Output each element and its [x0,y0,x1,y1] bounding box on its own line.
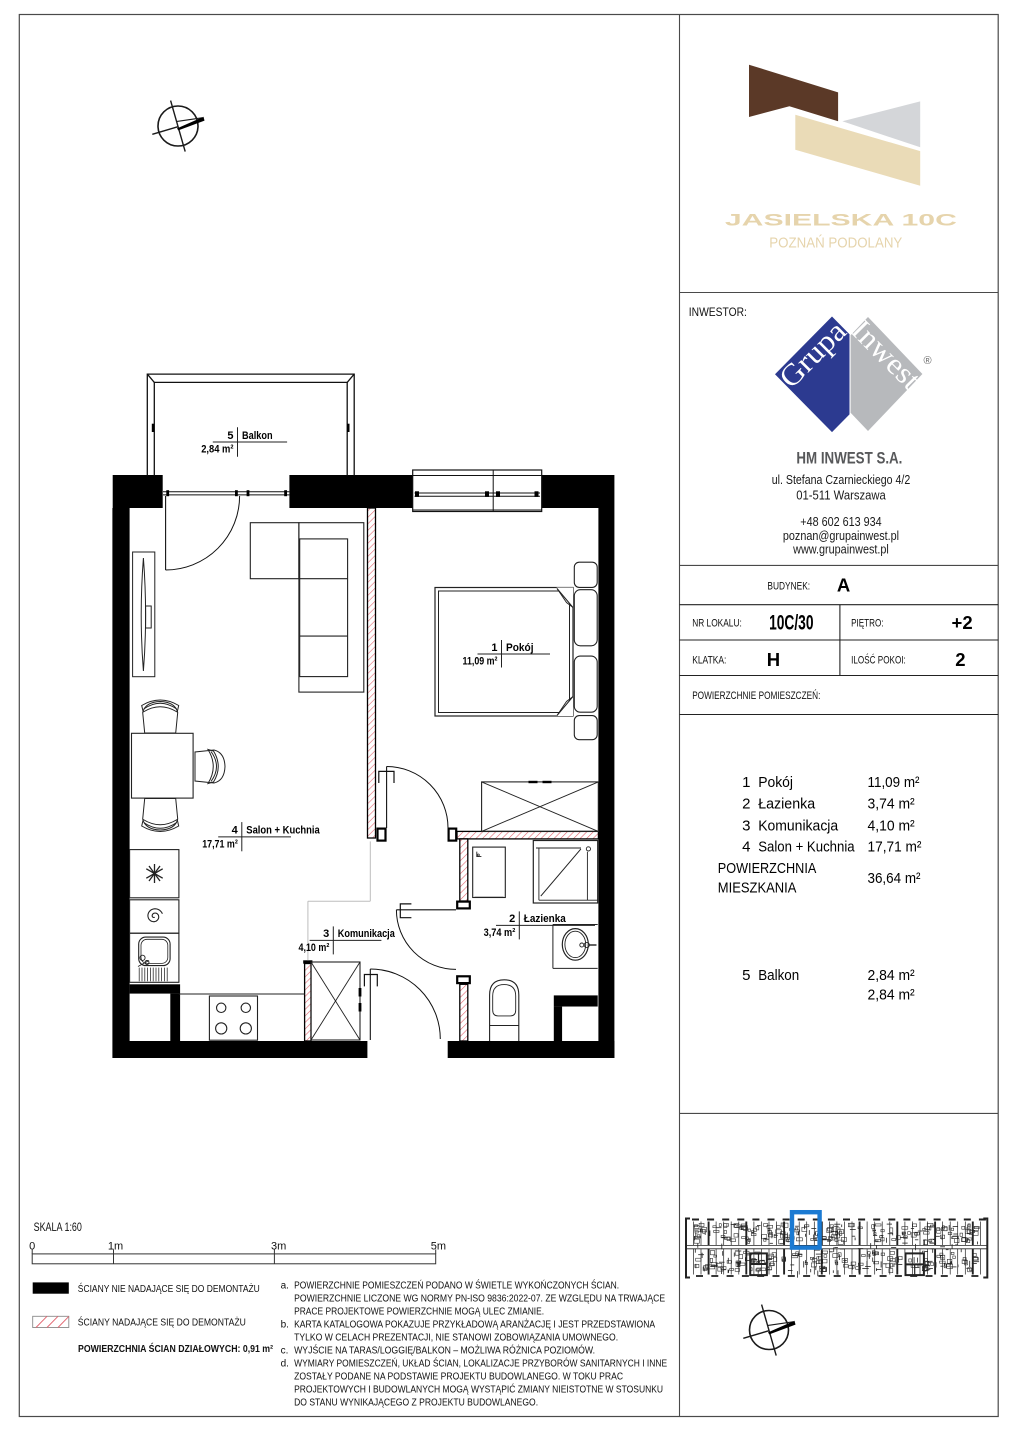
svg-text:Łazienka: Łazienka [758,795,816,812]
svg-text:01-511 Warszawa: 01-511 Warszawa [796,488,886,503]
svg-text:A: A [837,575,850,596]
svg-text:Pokój: Pokój [506,642,534,654]
svg-text:ul. Stefana Czarnieckiego 4/2: ul. Stefana Czarnieckiego 4/2 [772,472,911,487]
svg-text:Salon + Kuchnia: Salon + Kuchnia [758,838,855,855]
svg-text:JASIELSKA 10C: JASIELSKA 10C [725,211,957,230]
svg-text:3: 3 [323,928,329,940]
svg-text:1: 1 [742,774,750,791]
svg-text:2: 2 [955,649,965,670]
svg-text:Balkon: Balkon [758,967,799,984]
svg-text:DO STANU WYNIKAJĄCEGO Z PROJEK: DO STANU WYNIKAJĄCEGO Z PROJEKTU BUDOWLA… [294,1398,538,1409]
svg-text:MIESZKANIA: MIESZKANIA [718,879,797,896]
svg-text:ILOŚĆ POKOI:: ILOŚĆ POKOI: [851,654,906,667]
svg-text:NR LOKALU:: NR LOKALU: [692,618,742,630]
svg-text:5: 5 [227,430,233,442]
svg-text:4: 4 [742,838,750,855]
svg-text:POWIERZCHNIE POMIESZCZEŃ:: POWIERZCHNIE POMIESZCZEŃ: [692,689,820,702]
svg-text:POWIERZCHNIA ŚCIAN DZIAŁOWYCH:: POWIERZCHNIA ŚCIAN DZIAŁOWYCH: 0,91 m² [78,1342,273,1355]
svg-text:Pokój: Pokój [758,774,793,791]
svg-text:2,84 m²: 2,84 m² [868,987,915,1004]
svg-text:POWIERZCHNIE LICZONE WG NORMY: POWIERZCHNIE LICZONE WG NORMY PN-ISO 983… [294,1294,665,1305]
svg-text:Balkon: Balkon [242,430,273,442]
svg-text:www.grupainwest.pl: www.grupainwest.pl [792,542,889,557]
svg-text:3: 3 [742,818,750,835]
svg-text:Salon + Kuchnia: Salon + Kuchnia [246,825,320,837]
svg-text:0: 0 [29,1241,35,1253]
svg-text:3m: 3m [271,1241,286,1253]
svg-text:Komunikacja: Komunikacja [338,928,396,940]
svg-text:ŚCIANY NADAJĄCE SIĘ DO DEMONTA: ŚCIANY NADAJĄCE SIĘ DO DEMONTAŻU [78,1316,246,1329]
svg-text:HM INWEST S.A.: HM INWEST S.A. [796,449,902,468]
svg-text:2,84 m²: 2,84 m² [868,967,915,984]
svg-text:17,71 m²: 17,71 m² [868,838,922,855]
svg-text:KARTA KATALOGOWA POKAZUJE PRZY: KARTA KATALOGOWA POKAZUJE PRZYKŁADOWĄ AR… [294,1318,655,1331]
svg-text:1: 1 [491,642,497,654]
svg-text:5m: 5m [431,1241,446,1253]
svg-text:PROJEKTOWYCH I BUDOWLANYCH MOG: PROJEKTOWYCH I BUDOWLANYCH MOGĄ WYSTĄPIĆ… [294,1383,663,1396]
svg-text:4,10 m²: 4,10 m² [868,818,915,835]
svg-text:3,74 m²: 3,74 m² [868,795,915,812]
svg-text:ZOSTAŁY PODANE NA PODSTAWIE PR: ZOSTAŁY PODANE NA PODSTAWIE PROJEKTU BUD… [294,1372,623,1383]
svg-text:ŚCIANY NIE NADAJĄCE SIĘ DO DEM: ŚCIANY NIE NADAJĄCE SIĘ DO DEMONTAŻU [78,1282,260,1295]
svg-text:10C/30: 10C/30 [769,612,813,635]
svg-text:WYMIARY POMIESZCZEŃ, UKŁAD ŚCI: WYMIARY POMIESZCZEŃ, UKŁAD ŚCIAN, LOKALI… [294,1357,667,1370]
svg-text:b.: b. [281,1320,289,1331]
svg-text:3,74 m²: 3,74 m² [484,927,516,939]
svg-text:+2: +2 [952,612,973,633]
svg-text:POWIERZCHNIE POMIESZCZEŃ PODAN: POWIERZCHNIE POMIESZCZEŃ PODANO W ŚWIETL… [294,1279,619,1292]
svg-text:®: ® [924,355,932,367]
svg-text:H: H [767,649,780,670]
svg-text:WYJŚCIE NA TARAS/LOGGIĘ/BALKON: WYJŚCIE NA TARAS/LOGGIĘ/BALKON – MOŻLIWA… [294,1344,595,1357]
svg-text:SKALA 1:60: SKALA 1:60 [34,1222,82,1234]
svg-text:5: 5 [742,967,750,984]
svg-text:KLATKA:: KLATKA: [692,655,726,667]
svg-text:c.: c. [281,1346,289,1357]
svg-text:1m: 1m [108,1241,123,1253]
svg-text:17,71 m²: 17,71 m² [202,838,238,850]
svg-text:TYLKO W CELACH PREZENTACJI, NI: TYLKO W CELACH PREZENTACJI, NIE STANOWI … [294,1333,618,1344]
svg-text:BUDYNEK:: BUDYNEK: [767,581,810,593]
svg-text:2: 2 [742,795,750,812]
svg-text:2,84 m²: 2,84 m² [201,444,234,456]
svg-text:36,64 m²: 36,64 m² [868,870,921,887]
svg-text:11,09 m²: 11,09 m² [463,656,498,668]
svg-text:PIĘTRO:: PIĘTRO: [851,618,884,630]
svg-text:POWIERZCHNIA: POWIERZCHNIA [718,860,817,877]
svg-text:Łazienka: Łazienka [524,913,567,925]
svg-text:d.: d. [281,1359,289,1370]
svg-text:a.: a. [281,1281,289,1292]
svg-text:4,10 m²: 4,10 m² [299,942,330,954]
svg-text:2: 2 [509,913,515,925]
svg-text:POZNAŃ PODOLANY: POZNAŃ PODOLANY [769,235,902,252]
svg-text:INWESTOR:: INWESTOR: [689,305,747,319]
svg-text:11,09 m²: 11,09 m² [868,774,920,791]
svg-text:PRACE PROJEKTOWE POWIERZCHNIE: PRACE PROJEKTOWE POWIERZCHNIE MOGĄ ULEC … [294,1307,544,1318]
svg-text:Komunikacja: Komunikacja [758,818,839,835]
svg-text:4: 4 [232,825,239,837]
